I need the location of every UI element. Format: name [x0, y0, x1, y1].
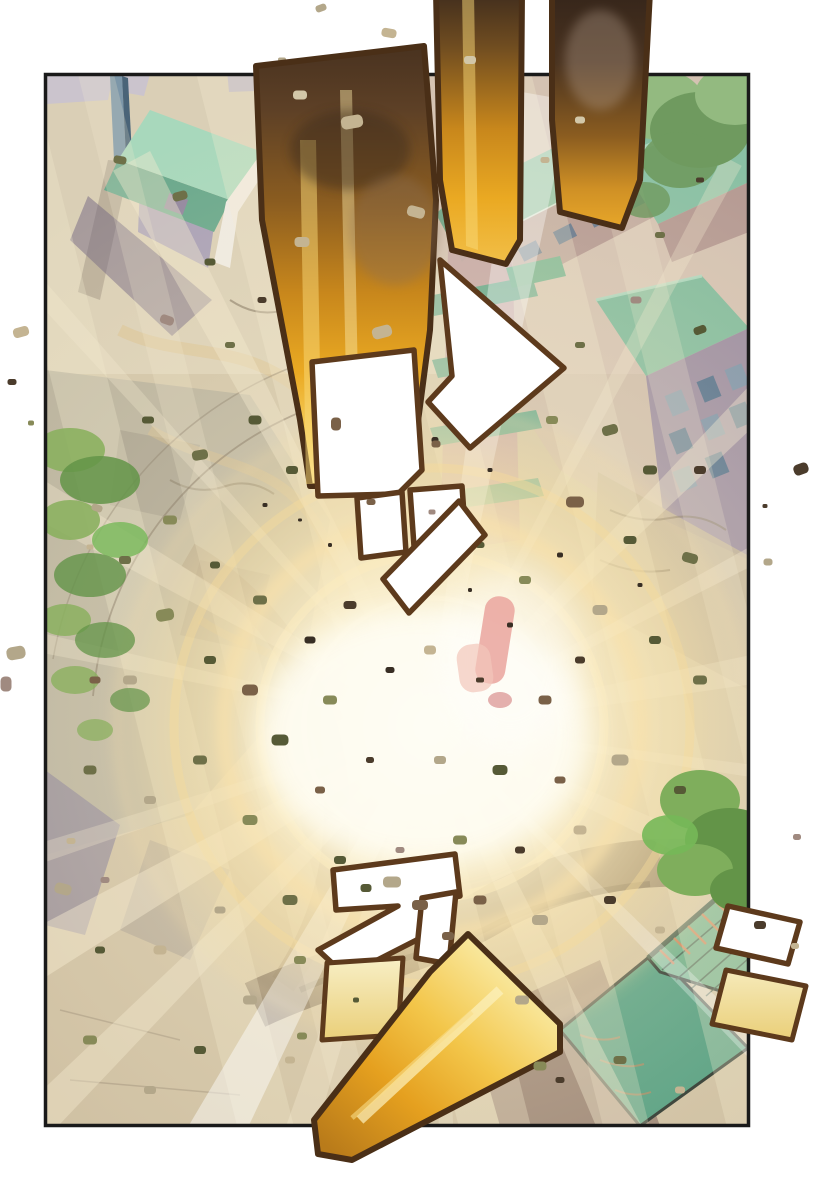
debris-blob: [432, 441, 441, 448]
debris-blob: [154, 946, 167, 955]
debris-blob: [557, 553, 563, 558]
debris-blob: [272, 735, 289, 746]
debris-blob: [28, 421, 34, 426]
debris-blob: [383, 877, 401, 888]
debris-blob: [638, 583, 643, 587]
debris-blob: [519, 576, 531, 584]
sfx-dakuten: [357, 492, 406, 558]
debris-blob: [193, 756, 207, 765]
debris-blob: [793, 834, 801, 840]
debris-blob: [293, 91, 307, 100]
debris-blob: [90, 677, 101, 684]
debris-blob: [534, 1062, 547, 1071]
debris-blob: [476, 678, 484, 683]
debris-blob: [655, 232, 665, 238]
debris-blob: [791, 943, 799, 949]
debris-blob: [566, 497, 584, 508]
debris-blob: [612, 755, 629, 766]
debris-blob: [215, 907, 226, 914]
debris-blob: [488, 468, 493, 472]
debris-blob: [225, 342, 235, 348]
debris-blob: [249, 416, 262, 425]
debris-blob: [8, 379, 17, 385]
debris-blob: [1, 677, 12, 692]
debris-blob: [386, 667, 395, 673]
debris-blob: [305, 637, 316, 644]
tree-blob: [642, 132, 718, 188]
beam-smoke: [350, 175, 440, 285]
debris-blob: [655, 927, 665, 934]
debris-blob: [649, 636, 661, 644]
debris-blob: [194, 1046, 206, 1054]
debris-blob: [754, 921, 766, 929]
debris-blob: [464, 56, 476, 64]
debris-blob: [366, 757, 374, 763]
debris-blob: [555, 777, 566, 784]
debris-blob: [674, 786, 686, 794]
debris-blob: [285, 1057, 295, 1064]
debris-blob: [696, 178, 704, 183]
debris-blob: [381, 27, 397, 38]
debris-blob: [258, 297, 267, 303]
debris-blob: [532, 915, 548, 925]
debris-blob: [295, 237, 310, 247]
debris-blob: [624, 536, 637, 544]
foliage-blob: [60, 456, 140, 504]
debris-blob: [468, 588, 472, 592]
sfx-beam-mid: [436, 0, 522, 264]
debris-blob: [6, 645, 27, 661]
debris-blob: [764, 559, 773, 566]
debris-blob: [119, 556, 131, 564]
debris-blob: [631, 297, 642, 304]
debris-blob: [429, 510, 436, 515]
debris-blob: [328, 543, 332, 547]
debris-blob: [434, 756, 446, 764]
debris-blob: [792, 461, 810, 476]
foliage-blob: [40, 500, 100, 540]
debris-blob: [101, 877, 110, 883]
debris-blob: [575, 117, 585, 124]
debris-blob: [367, 499, 376, 505]
debris-blob: [67, 838, 76, 844]
beam-smoke: [565, 10, 635, 110]
debris-blob: [515, 847, 525, 854]
debris-blob: [12, 325, 30, 339]
debris-blob: [344, 601, 357, 609]
debris-blob: [693, 676, 707, 685]
debris-blob: [575, 342, 585, 348]
debris-blob: [205, 259, 216, 266]
debris-blob: [243, 996, 257, 1005]
debris-blob: [83, 1036, 97, 1045]
sfx-stroke-block: [312, 350, 422, 496]
debris-blob: [315, 787, 325, 794]
debris-blob: [353, 998, 359, 1003]
debris-blob: [614, 1056, 627, 1064]
manga-artwork: [0, 0, 822, 1200]
debris-blob: [675, 1087, 685, 1094]
figure-detail: [488, 692, 512, 708]
debris-blob: [412, 900, 428, 910]
debris-blob: [361, 884, 372, 892]
debris-blob: [442, 932, 454, 940]
bush-blob: [710, 868, 770, 912]
debris-blob: [493, 765, 508, 775]
debris-blob: [204, 656, 216, 664]
debris-blob: [142, 417, 154, 424]
debris-blob: [263, 503, 268, 507]
debris-blob: [210, 562, 220, 569]
debris-blob: [84, 766, 97, 775]
debris-blob: [541, 157, 550, 163]
foliage-blob: [110, 688, 150, 712]
debris-blob: [515, 996, 529, 1005]
debris-blob: [424, 646, 436, 655]
debris-blob: [87, 545, 94, 550]
debris-blob: [123, 676, 137, 685]
debris-blob: [331, 418, 341, 431]
debris-blob: [95, 947, 105, 954]
debris-blob: [574, 826, 587, 835]
debris-blob: [323, 696, 337, 705]
debris-blob: [283, 895, 298, 905]
debris-blob: [556, 1077, 565, 1083]
debris-blob: [286, 466, 298, 474]
debris-blob: [315, 3, 328, 13]
debris-blob: [396, 847, 405, 853]
debris-blob: [242, 685, 258, 696]
debris-blob: [243, 815, 258, 825]
debris-blob: [144, 1086, 156, 1094]
debris-blob: [575, 657, 585, 664]
manga-page: [0, 0, 822, 1200]
debris-blob: [546, 416, 558, 424]
debris-blob: [604, 896, 616, 904]
debris-blob: [294, 956, 306, 964]
debris-blob: [643, 466, 657, 475]
foliage-blob: [75, 622, 135, 658]
debris-blob: [593, 605, 608, 615]
debris-blob: [297, 1033, 307, 1040]
debris-blob: [474, 896, 487, 905]
foliage-blob: [92, 522, 148, 558]
foliage-blob: [54, 553, 126, 597]
debris-blob: [163, 516, 177, 525]
debris-blob: [539, 696, 552, 705]
debris-blob: [253, 596, 267, 605]
bush-blob: [642, 815, 698, 855]
debris-blob: [694, 466, 706, 474]
debris-blob: [334, 856, 346, 864]
debris-blob: [763, 504, 768, 508]
debris-blob: [298, 519, 302, 522]
debris-blob: [453, 836, 467, 845]
foliage-blob: [77, 719, 113, 741]
debris-blob: [507, 623, 513, 628]
debris-blob: [144, 796, 156, 804]
